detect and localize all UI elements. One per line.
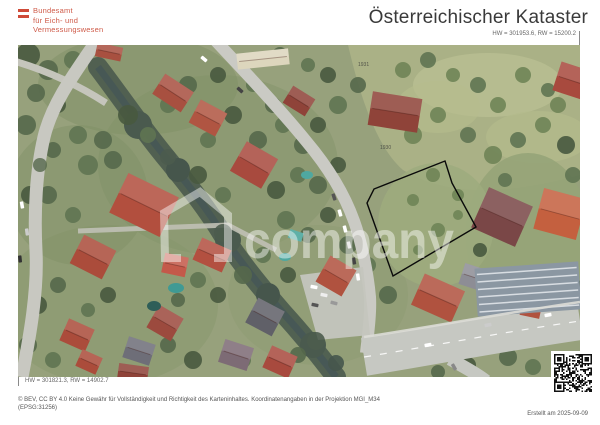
aerial-map-image: 1931 1930 company	[18, 45, 580, 377]
coordinate-bottom-left: HW = 301821.3, RW = 14902.7	[25, 378, 109, 384]
page-title: Österreichischer Kataster	[369, 7, 588, 29]
license-line-1: © BEV, CC BY 4.0 Keine Gewähr für Vollst…	[18, 396, 498, 404]
parcel-number-lower: 1930	[380, 145, 391, 151]
parcel-number-upper: 1931	[358, 62, 369, 68]
created-date: Erstellt am 2025-09-09	[527, 411, 588, 417]
coordinate-top-right: HW = 301953.6, RW = 15200.2	[492, 31, 576, 37]
license-note: © BEV, CC BY 4.0 Keine Gewähr für Vollst…	[18, 396, 498, 412]
austrian-flag-icon	[18, 9, 29, 18]
corner-tick-top-right	[579, 31, 580, 45]
watermark-text: company	[244, 212, 454, 270]
agency-line-2: für Eich- und	[33, 16, 103, 26]
agency-name: Bundesamt für Eich- und Vermessungswesen	[33, 6, 103, 35]
aerial-map: 1931 1930 company	[18, 45, 580, 377]
agency-line-3: Vermessungswesen	[33, 25, 103, 35]
agency-line-1: Bundesamt	[33, 6, 103, 16]
corner-tick-bottom-left	[18, 377, 19, 386]
qr-code	[551, 351, 595, 395]
license-line-2: (EPSG:31256)	[18, 404, 498, 412]
